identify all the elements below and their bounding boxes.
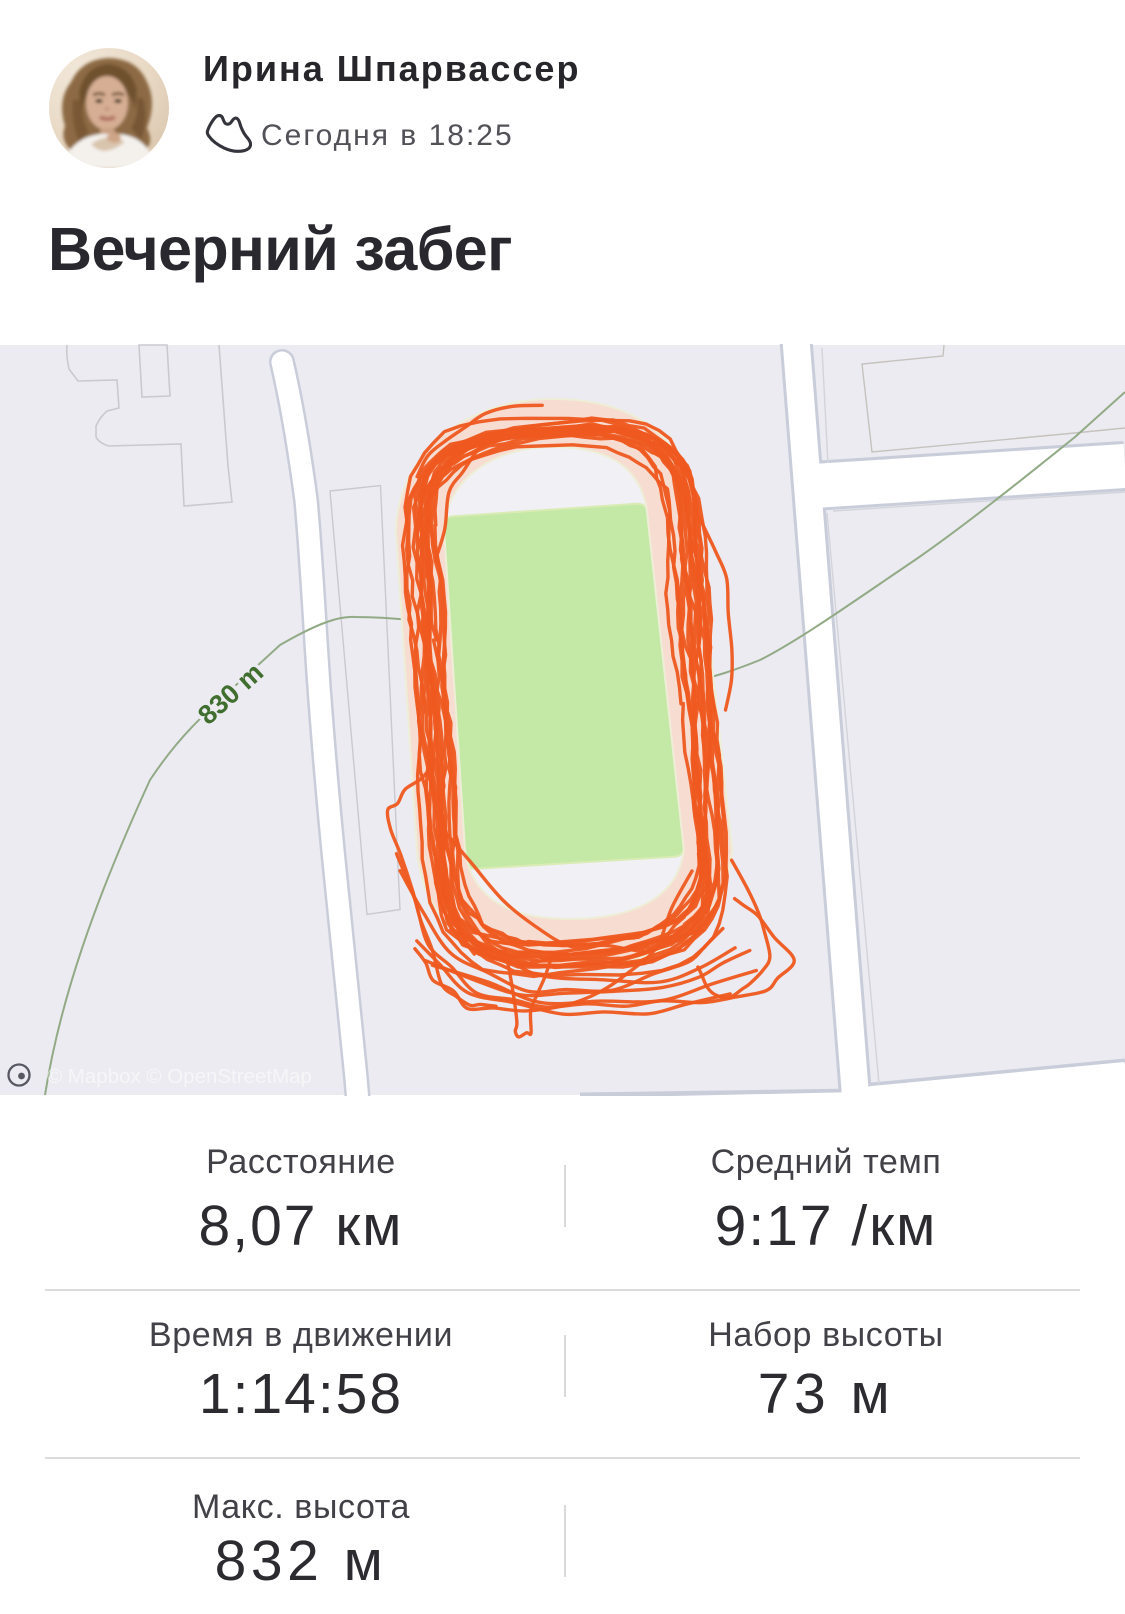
svg-text:© Mapbox © OpenStreetMap: © Mapbox © OpenStreetMap <box>47 1065 312 1088</box>
